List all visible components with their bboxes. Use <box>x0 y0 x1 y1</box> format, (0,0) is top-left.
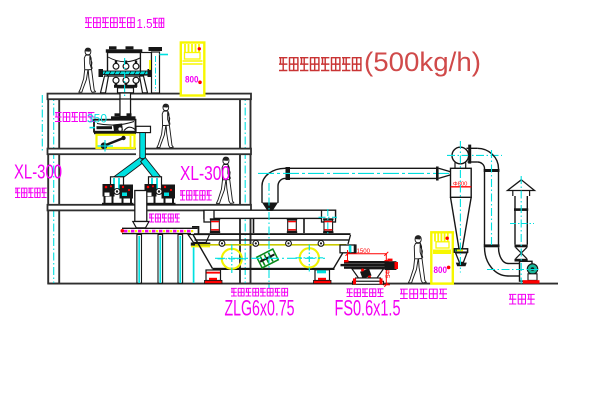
svg-text:XL-300: XL-300 <box>14 161 62 184</box>
svg-text:800: 800 <box>434 265 448 276</box>
svg-text:1.5: 1.5 <box>137 17 153 31</box>
svg-text:1500: 1500 <box>357 248 371 255</box>
svg-text:FS0.6x1.5: FS0.6x1.5 <box>335 296 401 321</box>
svg-text:350: 350 <box>87 112 107 126</box>
svg-text:XL-300: XL-300 <box>180 162 230 185</box>
svg-text:800: 800 <box>185 75 199 86</box>
svg-text:ZLG6x0.75: ZLG6x0.75 <box>225 296 295 321</box>
svg-text:(500kg/h): (500kg/h) <box>364 47 481 77</box>
